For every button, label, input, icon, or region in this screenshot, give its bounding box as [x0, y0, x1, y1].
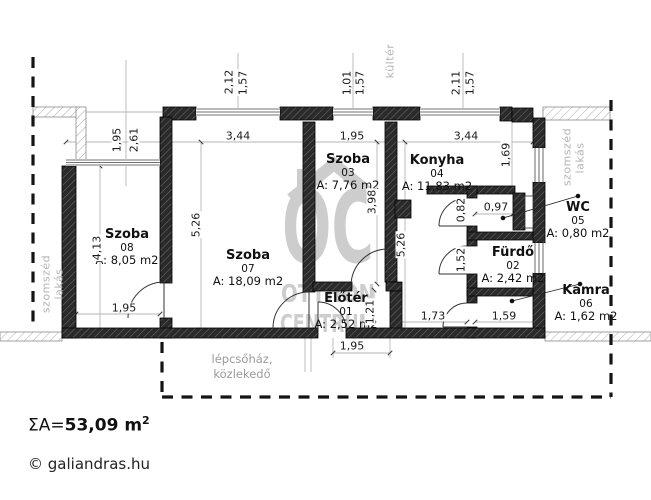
credit-watermark: © galiandras.hu [28, 455, 150, 473]
room-area: A: 11,83 m2 [402, 180, 472, 193]
room-area: A: 2,42 m2 [482, 272, 545, 285]
room-name: Szoba [96, 228, 159, 243]
dim-top-3a: 2,11 [451, 70, 462, 97]
room-label-furdo-02: Fürdő 02 A: 2,42 m2 [482, 246, 545, 285]
context-neighbor-left-2: lakás [54, 269, 65, 300]
room-name: Fürdő [482, 246, 545, 261]
dim-furdo-width: 1,59 [491, 311, 518, 322]
dim-wc-width: 0,97 [483, 202, 510, 213]
room-name: Konyha [402, 154, 472, 169]
context-neighbor-right-1: szomszéd [562, 128, 573, 186]
room-name: Szoba [317, 153, 380, 168]
dim-szoba03-depth: 3,98 [367, 189, 378, 216]
dim-eloter-depth: 1,21 [365, 299, 376, 326]
room-area: A: 1,62 m2 [555, 310, 618, 323]
dim-top-1a: 2,12 [224, 69, 235, 96]
room-area: A: 18,09 m2 [213, 275, 283, 288]
dim-recess-height: 2,61 [129, 127, 140, 154]
context-kulter: kültér [385, 44, 396, 79]
dim-konyha-width: 3,44 [453, 131, 480, 142]
dim-eloter-width: 1,95 [339, 341, 366, 352]
context-stairwell-line1: lépcsőház, [212, 352, 273, 366]
dim-furdo-depth: 1,52 [456, 247, 467, 274]
floorplan-page: OC OTTHON CENTRUM [0, 0, 651, 500]
room-label-kamra-06: Kamra 06 A: 1,62 m2 [555, 284, 618, 323]
context-stairwell-line2: közlekedő [213, 367, 270, 381]
dim-right-depth: 5,26 [396, 232, 407, 259]
dim-recess-width: 1,95 [112, 127, 123, 154]
dim-szoba08-width: 1,95 [111, 303, 138, 314]
total-area-prefix: ΣA= [28, 416, 65, 436]
total-area-sup: 2 [142, 414, 150, 427]
room-label-szoba-03: Szoba 03 A: 7,76 m2 [317, 153, 380, 192]
room-label-konyha-04: Konyha 04 A: 11,83 m2 [402, 154, 472, 193]
duct-shaft [525, 196, 533, 228]
room-name: Szoba [213, 249, 283, 264]
dim-szoba07-depth: 5,26 [191, 212, 202, 239]
dim-top-2b: 1,57 [355, 70, 366, 97]
dim-szoba03-width: 1,95 [339, 131, 366, 142]
room-label-szoba-07: Szoba 07 A: 18,09 m2 [213, 249, 283, 288]
room-name: WC [547, 201, 610, 216]
dim-top-1b: 1,57 [238, 70, 249, 97]
total-area: ΣA=53,09 m2 [28, 414, 150, 436]
context-neighbor-right-2: lakás [575, 143, 586, 174]
dim-wc-depth: 0,82 [456, 197, 467, 224]
room-area: A: 0,80 m2 [547, 227, 610, 240]
dim-top-3b: 1,57 [465, 70, 476, 97]
total-area-value: 53,09 m [65, 416, 142, 436]
dim-szoba07-width: 3,44 [225, 131, 252, 142]
dim-top-2a: 1,01 [342, 70, 353, 97]
dim-corridor-width: 1,73 [420, 311, 447, 322]
room-label-wc-05: WC 05 A: 0,80 m2 [547, 201, 610, 240]
dim-konyha-depth: 1,69 [501, 142, 512, 169]
room-label-szoba-08: Szoba 08 A: 8,05 m2 [96, 228, 159, 267]
room-area: A: 8,05 m2 [96, 254, 159, 267]
dim-szoba08-depth: 4,13 [92, 235, 103, 262]
room-name: Kamra [555, 284, 618, 299]
context-neighbor-left-1: szomszéd [41, 255, 52, 313]
